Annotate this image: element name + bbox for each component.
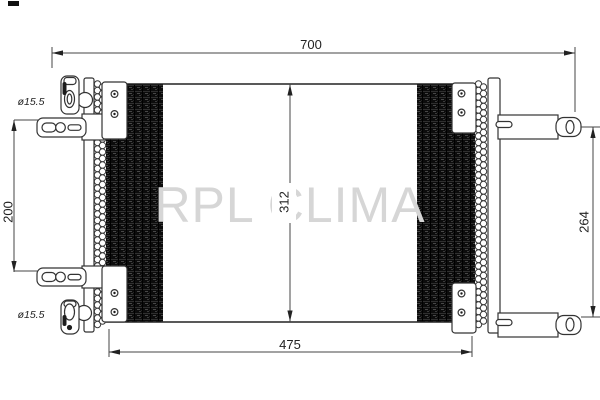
- port-diameter-label-bottom: ø15.5: [18, 309, 45, 321]
- dim-700-label: 700: [300, 37, 322, 52]
- dim-264-label: 264: [577, 211, 592, 233]
- condenser-diagram-canvas: RPL CLIMA 700 312 475 200: [0, 0, 600, 400]
- serpentine-edge-right-outer: [480, 84, 486, 324]
- condenser-technical-drawing: RPL CLIMA 700 312 475 200: [0, 0, 600, 400]
- dim-200-label: 200: [1, 201, 16, 223]
- dim-475-label: 475: [279, 337, 301, 352]
- dim-312-label: 312: [277, 191, 292, 213]
- port-diameter-label-top: ø15.5: [18, 96, 45, 108]
- scan-artifact: [8, 1, 19, 6]
